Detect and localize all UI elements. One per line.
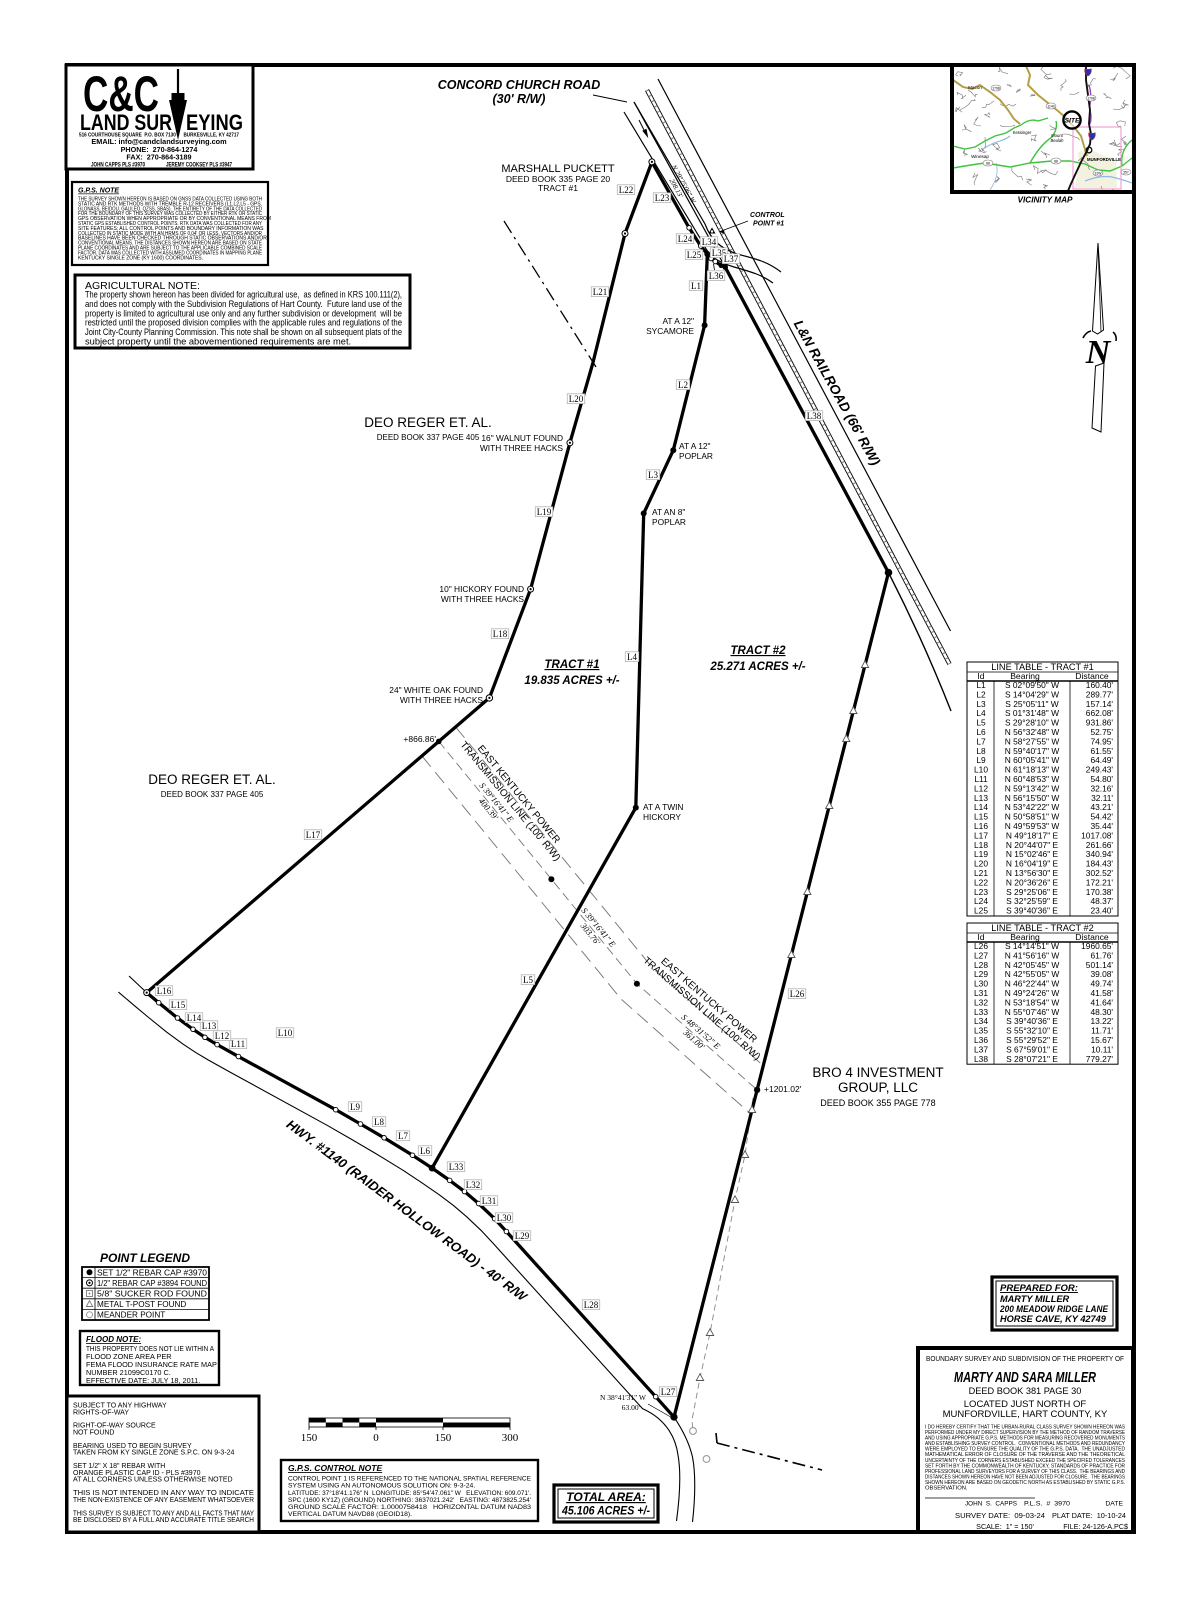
svg-text:EYING: EYING <box>186 110 243 135</box>
svg-text:BRO 4 INVESTMENT: BRO 4 INVESTMENT <box>812 1065 943 1080</box>
svg-text:SPC (1600 KY1Z) (GROUND) NORTH: SPC (1600 KY1Z) (GROUND) NORTHING: 36370… <box>288 1497 531 1504</box>
svg-text:DATE: DATE <box>1105 1501 1123 1508</box>
svg-text:MARTY MILLER: MARTY MILLER <box>1000 1294 1069 1304</box>
svg-text:DEO REGER ET. AL.: DEO REGER ET. AL. <box>148 772 276 787</box>
svg-text:HICKORY: HICKORY <box>643 812 681 822</box>
svg-text:S 28°07'21" E: S 28°07'21" E <box>1006 1054 1058 1064</box>
svg-text:L4: L4 <box>627 652 637 662</box>
svg-text:L5: L5 <box>523 975 533 985</box>
svg-text:L10: L10 <box>278 1028 293 1038</box>
svg-text:METAL T-POST FOUND: METAL T-POST FOUND <box>97 1300 186 1309</box>
svg-text:SURVEY DATE: 09-03-24: SURVEY DATE: 09-03-24 <box>955 1511 1045 1520</box>
svg-text:16" WALNUT FOUND: 16" WALNUT FOUND <box>481 433 563 443</box>
svg-text:TRACT #1: TRACT #1 <box>538 183 578 193</box>
svg-text:Winesap: Winesap <box>971 154 989 159</box>
svg-text:VERTICAL DATUM NAVD88 (GEOID18: VERTICAL DATUM NAVD88 (GEOID18). <box>288 1511 412 1518</box>
svg-text:L33: L33 <box>449 1162 464 1172</box>
svg-text:DEED BOOK 355 PAGE 778: DEED BOOK 355 PAGE 778 <box>820 1098 935 1108</box>
svg-text:JEREMY COOKSEY PLS #3947: JEREMY COOKSEY PLS #3947 <box>166 162 232 169</box>
svg-text:N 38°41'31" W: N 38°41'31" W <box>600 1393 647 1402</box>
svg-text:AT A 12": AT A 12" <box>662 316 694 326</box>
svg-text:G.P.S. NOTE: G.P.S. NOTE <box>78 188 119 195</box>
svg-text:200 MEADOW RIDGE LANE: 200 MEADOW RIDGE LANE <box>999 1304 1109 1314</box>
svg-text:0: 0 <box>373 1432 379 1444</box>
svg-text:L28: L28 <box>584 1300 599 1310</box>
svg-text:10" HICKORY FOUND: 10" HICKORY FOUND <box>439 584 524 594</box>
svg-text:TRACT #2: TRACT #2 <box>731 645 787 657</box>
svg-text:TAKEN FROM KY SINGLE ZONE S.P.: TAKEN FROM KY SINGLE ZONE S.P.C. ON 9-3-… <box>73 1450 235 1457</box>
svg-text:G.P.S. CONTROL NOTE: G.P.S. CONTROL NOTE <box>288 1463 382 1473</box>
svg-text:FLOOD NOTE:: FLOOD NOTE: <box>86 1335 141 1344</box>
svg-text:23.40': 23.40' <box>1090 906 1113 916</box>
svg-text:L25: L25 <box>687 250 702 260</box>
svg-text:88: 88 <box>1054 159 1058 163</box>
svg-text:5/8" SUCKER ROD FOUND: 5/8" SUCKER ROD FOUND <box>97 1290 207 1299</box>
svg-text:L15: L15 <box>171 1000 186 1010</box>
svg-text:150: 150 <box>301 1432 318 1444</box>
svg-text:L24: L24 <box>678 234 693 244</box>
svg-text:CONTROL: CONTROL <box>750 212 785 219</box>
svg-text:1/2" REBAR CAP #3894 FOUND: 1/2" REBAR CAP #3894 FOUND <box>97 1279 207 1288</box>
svg-text:N: N <box>1085 334 1112 371</box>
svg-text:300: 300 <box>502 1432 519 1444</box>
svg-text:KENTUCKY SINGLE ZONE (KY 1600): KENTUCKY SINGLE ZONE (KY 1600) COORDINAT… <box>78 255 203 261</box>
svg-text:1798: 1798 <box>1087 96 1095 100</box>
svg-text:S 39°40'36" E: S 39°40'36" E <box>1006 906 1058 916</box>
svg-text:L11: L11 <box>231 1039 245 1049</box>
svg-text:JOHN S. CAPPS: JOHN S. CAPPS <box>965 1501 1017 1508</box>
svg-text:150: 150 <box>435 1432 452 1444</box>
svg-text:SET 1/2" REBAR CAP #3970: SET 1/2" REBAR CAP #3970 <box>97 1268 207 1277</box>
svg-text:L26: L26 <box>790 989 805 999</box>
svg-text:L22: L22 <box>619 185 634 195</box>
svg-text:POPLAR: POPLAR <box>679 451 713 461</box>
svg-text:SCALE: 1" = 150': SCALE: 1" = 150' <box>976 1522 1034 1531</box>
svg-text:L30: L30 <box>497 1213 512 1223</box>
svg-text:L20: L20 <box>569 394 584 404</box>
svg-text:357: 357 <box>1123 170 1129 174</box>
svg-text:TRACT #1: TRACT #1 <box>545 659 600 671</box>
svg-text:L34: L34 <box>702 237 717 247</box>
svg-text:L9: L9 <box>350 1102 360 1112</box>
svg-text:19.835 ACRES +/-: 19.835 ACRES +/- <box>524 675 619 687</box>
svg-text:L8: L8 <box>374 1117 384 1127</box>
svg-text:VICINITY MAP: VICINITY MAP <box>1018 196 1073 205</box>
svg-text:NOT FOUND: NOT FOUND <box>73 1430 114 1437</box>
svg-text:L2: L2 <box>678 380 688 390</box>
svg-text:L1: L1 <box>691 281 701 291</box>
svg-text:L36: L36 <box>709 271 724 281</box>
svg-text:L13: L13 <box>202 1021 217 1031</box>
svg-text:+866.86': +866.86' <box>403 734 436 744</box>
svg-text:31W: 31W <box>1095 171 1103 175</box>
svg-text:AT ALL CORNERS UNLESS OTHERWIS: AT ALL CORNERS UNLESS OTHERWISE NOTED <box>73 1477 233 1484</box>
svg-text:24" WHITE OAK FOUND: 24" WHITE OAK FOUND <box>389 685 483 695</box>
svg-text:L17: L17 <box>306 830 321 840</box>
svg-text:+1201.02': +1201.02' <box>764 1084 802 1094</box>
svg-text:Beulah: Beulah <box>1050 138 1064 143</box>
svg-text:SYSTEM USING AN AUTONOMOUS SOL: SYSTEM USING AN AUTONOMOUS SOLUTION ON: … <box>288 1483 475 1490</box>
svg-text:BOUNDARY SURVEY AND SUBDIVISIO: BOUNDARY SURVEY AND SUBDIVISION OF THE P… <box>926 1354 1124 1363</box>
svg-text:AT A TWIN: AT A TWIN <box>643 802 684 812</box>
svg-text:SYCAMORE: SYCAMORE <box>646 326 694 336</box>
svg-text:45.106 ACRES +/-: 45.106 ACRES +/- <box>561 1506 650 1518</box>
svg-text:POINT LEGEND: POINT LEGEND <box>100 1251 190 1265</box>
svg-text:subject property until the abo: subject property until the abovementione… <box>85 337 351 347</box>
svg-text:PLAT DATE: 10-10-24: PLAT DATE: 10-10-24 <box>1052 1511 1126 1520</box>
svg-text:1798: 1798 <box>992 86 1000 90</box>
svg-text:63.00': 63.00' <box>622 1403 641 1412</box>
svg-text:JOHN CAPPS PLS #3970: JOHN CAPPS PLS #3970 <box>91 162 145 169</box>
svg-text:THE NON-EXISTENCE OF ANY EASEM: THE NON-EXISTENCE OF ANY EASEMENT WHATSO… <box>73 1497 254 1504</box>
svg-text:Macon: Macon <box>968 85 982 90</box>
svg-text:DEO REGER ET. AL.: DEO REGER ET. AL. <box>364 415 492 430</box>
svg-text:WITH THREE HACKS: WITH THREE HACKS <box>480 443 564 453</box>
svg-text:POPLAR: POPLAR <box>652 517 686 527</box>
svg-text:LAND SUR: LAND SUR <box>80 110 172 135</box>
svg-text:PREPARED FOR:: PREPARED FOR: <box>1000 1283 1078 1294</box>
svg-text:LATITUDE: 37°18'41.176" N LON: LATITUDE: 37°18'41.176" N LONGITUDE: 85°… <box>288 1489 531 1497</box>
svg-text:P.L.S. # 3970: P.L.S. # 3970 <box>1024 1501 1070 1508</box>
svg-text:DEED BOOK 337 PAGE 405: DEED BOOK 337 PAGE 405 <box>377 433 480 442</box>
svg-text:TOTAL AREA:: TOTAL AREA: <box>566 1490 646 1504</box>
svg-text:L27: L27 <box>661 1387 676 1397</box>
svg-text:FAX: 270-864-3189: FAX: 270-864-3189 <box>126 153 191 162</box>
svg-text:L29: L29 <box>515 1231 530 1241</box>
svg-text:L32: L32 <box>466 1180 481 1190</box>
svg-text:RIGHTS-OF-WAY: RIGHTS-OF-WAY <box>73 1409 129 1416</box>
svg-text:L31: L31 <box>482 1196 497 1206</box>
svg-text:(30' R/W): (30' R/W) <box>493 92 546 106</box>
svg-text:L14: L14 <box>187 1013 202 1023</box>
svg-text:MUNFORDVILLE, HART COUNTY, KY: MUNFORDVILLE, HART COUNTY, KY <box>943 1409 1108 1420</box>
svg-text:L18: L18 <box>493 629 508 639</box>
svg-text:DEED BOOK 381 PAGE 30: DEED BOOK 381 PAGE 30 <box>969 1386 1082 1396</box>
svg-text:L6: L6 <box>420 1146 430 1156</box>
svg-text:L38: L38 <box>807 411 822 421</box>
svg-text:MUNFORDVILLE: MUNFORDVILLE <box>1087 157 1121 162</box>
svg-text:1140: 1140 <box>1047 104 1054 108</box>
svg-text:779.27': 779.27' <box>1086 1054 1114 1064</box>
svg-text:Kessinger: Kessinger <box>1013 130 1032 135</box>
svg-text:POINT #1: POINT #1 <box>753 221 784 228</box>
svg-text:BE DISCLOSED BY A FULL AND ACC: BE DISCLOSED BY A FULL AND ACCURATE TITL… <box>73 1517 254 1524</box>
svg-text:L7: L7 <box>398 1131 408 1141</box>
svg-text:DEED BOOK 337 PAGE 405: DEED BOOK 337 PAGE 405 <box>161 790 264 799</box>
svg-text:AT AN 8": AT AN 8" <box>652 507 685 517</box>
svg-text:GROUP, LLC: GROUP, LLC <box>838 1080 918 1095</box>
svg-text:L25: L25 <box>974 906 988 916</box>
svg-text:WITH THREE HACKS: WITH THREE HACKS <box>400 695 484 705</box>
svg-text:88: 88 <box>986 161 990 165</box>
svg-text:L21: L21 <box>593 287 608 297</box>
svg-text:SITE: SITE <box>1064 118 1080 125</box>
svg-text:L23: L23 <box>655 193 670 203</box>
svg-text:L19: L19 <box>537 507 552 517</box>
svg-text:L12: L12 <box>215 1031 230 1041</box>
svg-text:EFFECTIVE DATE: JULY 18, 2011.: EFFECTIVE DATE: JULY 18, 2011. <box>86 1376 200 1385</box>
svg-text:CONCORD CHURCH ROAD: CONCORD CHURCH ROAD <box>438 78 601 92</box>
svg-text:L16: L16 <box>157 986 172 996</box>
svg-text:FILE: 24-126-A.PC$: FILE: 24-126-A.PC$ <box>1063 1522 1128 1531</box>
svg-text:L37: L37 <box>724 254 739 264</box>
svg-text:L3: L3 <box>648 470 658 480</box>
svg-text:25.271 ACRES +/-: 25.271 ACRES +/- <box>709 661 805 673</box>
svg-text:OBSERVATION.: OBSERVATION. <box>925 1486 968 1492</box>
svg-text:GROUND SCALE FACTOR: 1.0000758: GROUND SCALE FACTOR: 1.0000758418 HORIZO… <box>288 1504 531 1511</box>
svg-text:WITH THREE HACKS: WITH THREE HACKS <box>441 594 525 604</box>
svg-text:CONTROL POINT 1 IS REFERENCED: CONTROL POINT 1 IS REFERENCED TO THE NAT… <box>288 1476 531 1483</box>
svg-text:HORSE CAVE, KY 42749: HORSE CAVE, KY 42749 <box>1000 1314 1107 1324</box>
svg-text:MEANDER POINT: MEANDER POINT <box>97 1311 165 1320</box>
svg-text:AT A 12": AT A 12" <box>679 441 711 451</box>
svg-text:MARTY AND SARA MILLER: MARTY AND SARA MILLER <box>954 1369 1096 1386</box>
svg-text:L38: L38 <box>974 1054 988 1064</box>
